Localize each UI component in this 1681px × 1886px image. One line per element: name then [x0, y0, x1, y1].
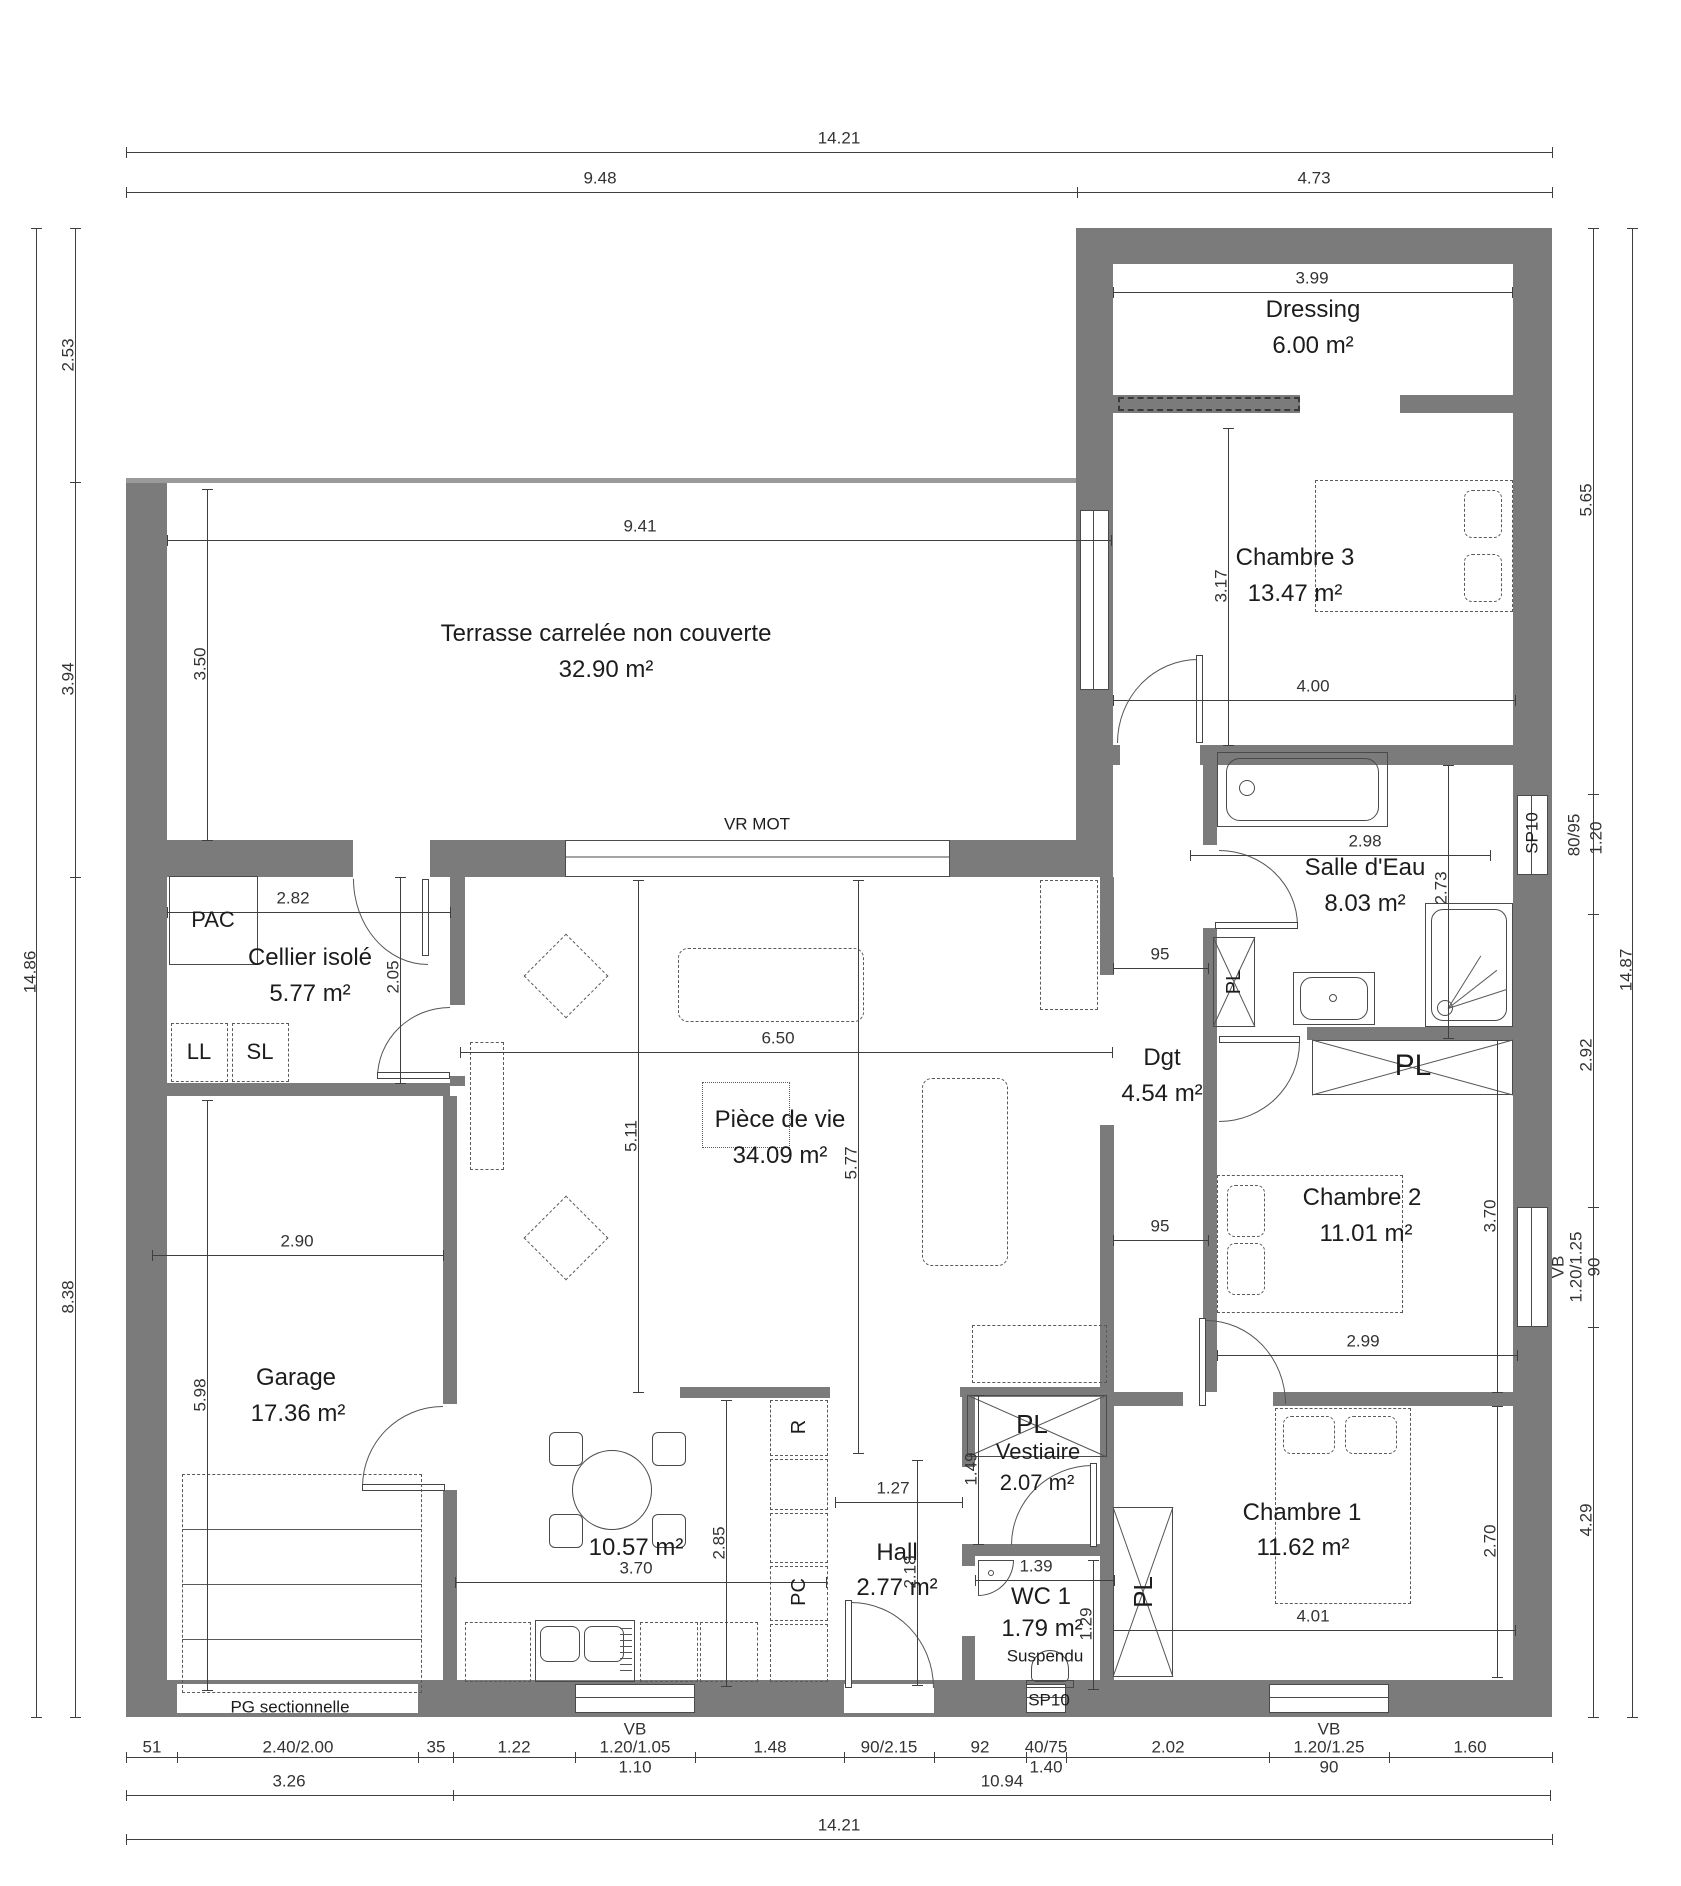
dimension-label: 14.21	[818, 130, 861, 147]
dimension-label: 14.21	[818, 1817, 861, 1834]
room-name: Chambre 3	[1236, 546, 1355, 570]
dimension-label: 10.94	[981, 1773, 1024, 1790]
fixture-box	[1026, 1680, 1074, 1688]
dimension-label: 3.26	[272, 1773, 305, 1790]
fixture-box	[549, 1432, 583, 1466]
dimension-line	[126, 192, 1552, 193]
dimension-label: 2.40/2.00	[263, 1739, 334, 1756]
door-opening	[844, 1684, 934, 1713]
dimension-label: 2.85	[711, 1526, 728, 1559]
room-area: 6.00 m²	[1272, 334, 1353, 358]
wall	[1100, 877, 1114, 975]
wall	[962, 1636, 975, 1680]
dimension-tick	[443, 1250, 444, 1261]
dimension-tick	[1517, 1350, 1518, 1361]
dimension-tick	[1269, 1752, 1270, 1763]
dimension-tick	[126, 147, 127, 158]
dimension-tick	[177, 1752, 178, 1763]
dimension-label: 1.49	[963, 1452, 980, 1485]
wall	[1076, 228, 1552, 264]
wall	[962, 1556, 975, 1566]
dimension-label: 92	[971, 1739, 990, 1756]
fixture-box	[972, 1325, 1107, 1383]
window	[1517, 1207, 1548, 1327]
annotation: PL	[1016, 1411, 1048, 1437]
dimension-line	[126, 152, 1552, 153]
room-area: 32.90 m²	[559, 658, 654, 682]
dimension-label: 2.90	[280, 1233, 313, 1250]
window	[1080, 510, 1109, 690]
dimension-tick	[853, 880, 864, 881]
door-leaf	[1215, 922, 1298, 929]
dimension-tick	[1113, 963, 1114, 974]
dimension-tick	[1208, 1235, 1209, 1246]
fixture-box	[1464, 554, 1502, 602]
dimension-tick	[1190, 850, 1191, 861]
dimension-tick	[1552, 1834, 1553, 1845]
dimension-label: 4.01	[1296, 1608, 1329, 1625]
room-area: 1.79 m²	[1001, 1617, 1082, 1641]
terrace-edge	[126, 478, 1076, 483]
dimension-tick	[1588, 1207, 1599, 1208]
dimension-label: 2.98	[1348, 833, 1381, 850]
room-area: 17.36 m²	[251, 1402, 346, 1426]
dimension-label: 3.70	[1482, 1199, 1499, 1232]
dimension-tick	[1492, 1040, 1503, 1041]
dimension-tick	[460, 1047, 461, 1058]
dimension-label: 3.94	[60, 662, 77, 695]
dimension-tick	[455, 1577, 456, 1588]
wall	[1273, 1392, 1513, 1406]
dimension-tick	[633, 1392, 644, 1393]
dimension-tick	[835, 1497, 836, 1508]
dimension-tick	[1588, 914, 1599, 915]
annotation: LL	[187, 1041, 211, 1063]
wall	[126, 482, 167, 1717]
dimension-tick	[31, 1717, 42, 1718]
dimension-line	[1113, 968, 1208, 969]
annotation: PC	[789, 1578, 809, 1606]
fixture-box	[524, 934, 609, 1019]
fixture-box	[1227, 1243, 1265, 1295]
dimension-label: 1.20	[1588, 821, 1605, 854]
dimension-label: 1.40	[1029, 1759, 1062, 1776]
door-leaf	[1199, 1318, 1206, 1406]
fixture-box	[922, 1078, 1008, 1266]
dimension-tick	[912, 1460, 923, 1461]
annotation: PAC	[191, 909, 235, 931]
room-name: Vestiaire	[996, 1441, 1080, 1463]
dimension-tick	[126, 187, 127, 198]
fixture-box	[700, 1622, 758, 1682]
dimension-tick	[1492, 1392, 1503, 1393]
fixture-box	[470, 1042, 504, 1170]
dimension-label: 14.87	[1618, 949, 1635, 992]
wall	[152, 1083, 450, 1096]
annotation: PL	[1395, 1051, 1432, 1081]
room-name: Pièce de vie	[715, 1108, 846, 1132]
fixture-box	[465, 1622, 531, 1682]
dimension-label: 1.10	[618, 1759, 651, 1776]
dimension-tick	[1552, 1752, 1553, 1763]
dimension-label: 2.82	[276, 890, 309, 907]
door-opening	[353, 840, 430, 877]
dimension-tick	[70, 1717, 81, 1718]
room-area: 5.77 m²	[269, 982, 350, 1006]
fixture-box	[678, 948, 864, 1022]
dimension-tick	[1627, 228, 1638, 229]
room-area: 2.77 m²	[856, 1576, 937, 1600]
dimension-tick	[575, 1752, 576, 1763]
dimension-label: VB	[1550, 1256, 1567, 1279]
door-leaf	[377, 1072, 450, 1079]
dimension-tick	[126, 1834, 127, 1845]
wall	[680, 1387, 830, 1398]
dimension-label: 1.20/1.25	[1294, 1739, 1365, 1756]
door-swing-arc	[1206, 1320, 1286, 1404]
fixture-box	[1329, 994, 1337, 1002]
annotation: SL	[247, 1041, 274, 1063]
dimension-line	[1113, 700, 1515, 701]
wall	[1203, 765, 1217, 845]
dimension-tick	[126, 1790, 127, 1801]
door-leaf	[845, 1600, 852, 1688]
dimension-label: VB	[624, 1721, 647, 1738]
dimension-tick	[1443, 1038, 1454, 1039]
room-name: Terrasse carrelée non couverte	[441, 622, 772, 646]
dimension-label: 95	[1151, 946, 1170, 963]
dimension-tick	[1111, 535, 1112, 546]
dimension-tick	[721, 1686, 732, 1687]
dimension-label: 2.99	[1346, 1333, 1379, 1350]
dimension-line	[1113, 292, 1512, 293]
dimension-tick	[70, 877, 81, 878]
dimension-tick	[202, 1100, 213, 1101]
dimension-tick	[1113, 1235, 1114, 1246]
wall	[450, 877, 465, 1005]
dimension-label: 4.73	[1297, 170, 1330, 187]
fixture-box	[1118, 397, 1300, 411]
dimension-label: 51	[143, 1739, 162, 1756]
dimension-tick	[1443, 765, 1454, 766]
dimension-tick	[912, 1685, 923, 1686]
dimension-tick	[1223, 428, 1234, 429]
annotation: VR MOT	[724, 816, 790, 833]
dimension-label: 2.73	[1433, 871, 1450, 904]
dimension-label: 1.29	[1078, 1607, 1095, 1640]
dimension-label: 5.11	[623, 1120, 640, 1152]
dimension-tick	[395, 877, 406, 878]
dimension-tick	[1627, 1717, 1638, 1718]
dimension-tick	[1113, 287, 1114, 298]
room-name: Chambre 1	[1243, 1501, 1362, 1525]
dimension-tick	[70, 228, 81, 229]
dimension-tick	[202, 1690, 213, 1691]
dimension-tick	[1588, 794, 1599, 795]
fixture-box	[1227, 1185, 1265, 1237]
window	[565, 840, 950, 877]
dimension-label: 2.18	[902, 1555, 919, 1588]
dimension-label: 1.22	[497, 1739, 530, 1756]
dimension-tick	[1114, 1575, 1115, 1586]
dimension-tick	[826, 1577, 827, 1588]
dimension-tick	[1208, 963, 1209, 974]
dimension-label: 90	[1320, 1759, 1339, 1776]
fixture-box	[988, 1570, 994, 1576]
dimension-tick	[844, 1752, 845, 1763]
dimension-tick	[202, 840, 213, 841]
dimension-tick	[126, 1752, 127, 1763]
fixture-box	[1345, 1416, 1397, 1454]
annotation: R	[789, 1420, 809, 1434]
dimension-tick	[975, 1575, 976, 1586]
dimension-label: 3.99	[1295, 270, 1328, 287]
fixture-box	[1239, 780, 1255, 796]
dimension-line	[1113, 1630, 1515, 1631]
dimension-tick	[1088, 1689, 1099, 1690]
dimension-tick	[453, 1790, 454, 1801]
dimension-tick	[395, 1083, 406, 1084]
dimension-label: 14.86	[22, 951, 39, 994]
dimension-label: 40/75	[1025, 1739, 1068, 1756]
room-area: 11.62 m²	[1257, 1536, 1350, 1560]
fixture-box	[1283, 1416, 1335, 1454]
wall	[1513, 264, 1552, 1680]
fixture-box	[524, 1196, 609, 1281]
dimension-label: 4.00	[1296, 678, 1329, 695]
dimension-label: 2.53	[60, 338, 77, 371]
door-opening	[1300, 395, 1400, 413]
dimension-line	[1217, 1355, 1517, 1356]
dimension-label: 4.29	[1578, 1503, 1595, 1536]
annotation: SP10	[1028, 1692, 1070, 1709]
dimension-tick	[1515, 695, 1516, 706]
dimension-label: 90/2.15	[861, 1739, 918, 1756]
dimension-label: 2.02	[1151, 1739, 1184, 1756]
door-opening	[450, 1005, 465, 1076]
dimension-tick	[973, 1395, 984, 1396]
dimension-label: 1.20/1.25	[1568, 1232, 1585, 1303]
room-area: 10.57 m²	[589, 1536, 684, 1560]
door-leaf	[1196, 655, 1203, 743]
dimension-tick	[418, 1752, 419, 1763]
dimension-tick	[167, 535, 168, 546]
dimension-line	[152, 1255, 443, 1256]
door-leaf	[1090, 1463, 1097, 1547]
dimension-tick	[1492, 1406, 1503, 1407]
dimension-label: 3.17	[1213, 569, 1230, 602]
dimension-label: 95	[1151, 1218, 1170, 1235]
dimension-label: 90	[1586, 1258, 1603, 1277]
annotation: PG sectionnelle	[230, 1699, 349, 1716]
annotation: PL	[1224, 970, 1244, 994]
dimension-tick	[1113, 695, 1114, 706]
dimension-label: 2.05	[385, 960, 402, 993]
fixture-box	[770, 1459, 828, 1510]
wall	[450, 1076, 465, 1086]
dimension-label: 3.70	[619, 1560, 652, 1577]
door-swing-arc	[1219, 850, 1298, 926]
dimension-tick	[633, 880, 644, 881]
dimension-line	[1593, 228, 1594, 1717]
dimension-tick	[202, 489, 213, 490]
fixture-box	[549, 1514, 583, 1548]
room-area: 13.47 m²	[1248, 582, 1343, 606]
dimension-tick	[152, 1250, 153, 1261]
fixture-box	[652, 1432, 686, 1466]
fixture-box	[182, 1639, 422, 1640]
dimension-line	[1113, 1240, 1208, 1241]
window	[575, 1684, 695, 1713]
room-name: Cellier isolé	[248, 946, 372, 970]
door-swing-arc	[377, 1007, 450, 1078]
dimension-tick	[934, 1752, 935, 1763]
dimension-tick	[1552, 187, 1553, 198]
room-name: Garage	[256, 1366, 336, 1390]
door-leaf	[422, 879, 429, 956]
dimension-tick	[167, 907, 168, 918]
fixture-box	[640, 1622, 698, 1682]
dimension-tick	[1588, 1717, 1599, 1718]
room-name: Dgt	[1143, 1046, 1180, 1070]
dimension-tick	[695, 1752, 696, 1763]
dimension-line	[126, 1795, 1550, 1796]
fixture-box	[978, 1560, 1014, 1596]
room-area: 34.09 m²	[733, 1144, 828, 1168]
dimension-label: 1.39	[1019, 1558, 1052, 1575]
fixture-box	[770, 1624, 828, 1682]
annotation: Suspendu	[1007, 1648, 1084, 1665]
dimension-tick	[853, 1453, 864, 1454]
dimension-tick	[1223, 745, 1234, 746]
dimension-tick	[1088, 1560, 1099, 1561]
dimension-label: 1.20/1.05	[600, 1739, 671, 1756]
dimension-label: 1.60	[1453, 1739, 1486, 1756]
dimension-label: 35	[427, 1739, 446, 1756]
fixture-box	[182, 1529, 422, 1530]
dimension-label: 1.48	[753, 1739, 786, 1756]
dimension-tick	[1389, 1752, 1390, 1763]
room-area: 2.07 m²	[1000, 1472, 1075, 1494]
dimension-label: 80/95	[1566, 814, 1583, 857]
fixture-box	[1464, 490, 1502, 538]
dimension-label: VB	[1318, 1721, 1341, 1738]
door-swing-arc	[851, 1602, 934, 1688]
dimension-label: 9.41	[623, 518, 656, 535]
door-opening	[1120, 745, 1200, 765]
room-name: Dressing	[1266, 298, 1361, 322]
fixture-box	[540, 1626, 580, 1662]
dimension-label: 9.48	[583, 170, 616, 187]
fixture-box	[584, 1626, 624, 1662]
dimension-label: 2.70	[1482, 1524, 1499, 1557]
dimension-tick	[31, 228, 42, 229]
dimension-label: 2.92	[1578, 1038, 1595, 1071]
dimension-line	[167, 540, 1111, 541]
dimension-tick	[1490, 850, 1491, 861]
dimension-tick	[1112, 1047, 1113, 1058]
dimension-tick	[1515, 1625, 1516, 1636]
dimension-label: 5.77	[843, 1146, 860, 1179]
dimension-label: 3.50	[192, 647, 209, 680]
dimension-line	[126, 1839, 1552, 1840]
fixture-box	[620, 1628, 632, 1674]
room-name: WC 1	[1011, 1585, 1071, 1609]
room-area: 4.54 m²	[1121, 1082, 1202, 1106]
dimension-label: 5.65	[1578, 483, 1595, 516]
wall	[443, 1096, 457, 1404]
room-area: 8.03 m²	[1324, 892, 1405, 916]
dimension-line	[75, 228, 76, 1717]
annotation: SP10	[1524, 812, 1541, 854]
room-area: 11.01 m²	[1320, 1222, 1413, 1246]
dimension-tick	[1552, 147, 1553, 158]
fixture-box	[572, 1450, 652, 1530]
floor-plan: Dressing6.00 m²Chambre 313.47 m²Terrasse…	[0, 0, 1681, 1886]
dimension-tick	[1588, 228, 1599, 229]
dimension-tick	[1512, 287, 1513, 298]
annotation: PL	[1130, 1576, 1156, 1608]
dimension-label: 5.98	[192, 1378, 209, 1411]
dimension-line	[835, 1502, 962, 1503]
wall	[1113, 1392, 1183, 1406]
fixture-box	[182, 1584, 422, 1585]
dimension-label: 6.50	[761, 1030, 794, 1047]
fixture-box	[770, 1513, 828, 1563]
dimension-tick	[1217, 1350, 1218, 1361]
door-swing-arc	[1117, 659, 1198, 743]
dimension-tick	[721, 1400, 732, 1401]
room-name: Chambre 2	[1303, 1186, 1422, 1210]
dimension-tick	[962, 1497, 963, 1508]
dimension-tick	[1077, 187, 1078, 198]
fixture-box	[1040, 880, 1098, 1010]
door-leaf	[1219, 1036, 1300, 1043]
dimension-line	[455, 1582, 826, 1583]
door-swing-arc	[1219, 1042, 1300, 1122]
room-name: Salle d'Eau	[1305, 856, 1426, 880]
dimension-tick	[1113, 1625, 1114, 1636]
window	[1269, 1684, 1389, 1713]
dimension-tick	[1588, 1327, 1599, 1328]
dimension-tick	[450, 907, 451, 918]
dimension-tick	[1492, 1677, 1503, 1678]
dimension-label: 8.38	[60, 1280, 77, 1313]
dimension-tick	[453, 1752, 454, 1763]
dimension-tick	[1550, 1790, 1551, 1801]
dimension-tick	[70, 482, 81, 483]
dimension-tick	[973, 1544, 984, 1545]
dimension-label: 1.27	[876, 1480, 909, 1497]
dimension-line	[460, 1052, 1112, 1053]
